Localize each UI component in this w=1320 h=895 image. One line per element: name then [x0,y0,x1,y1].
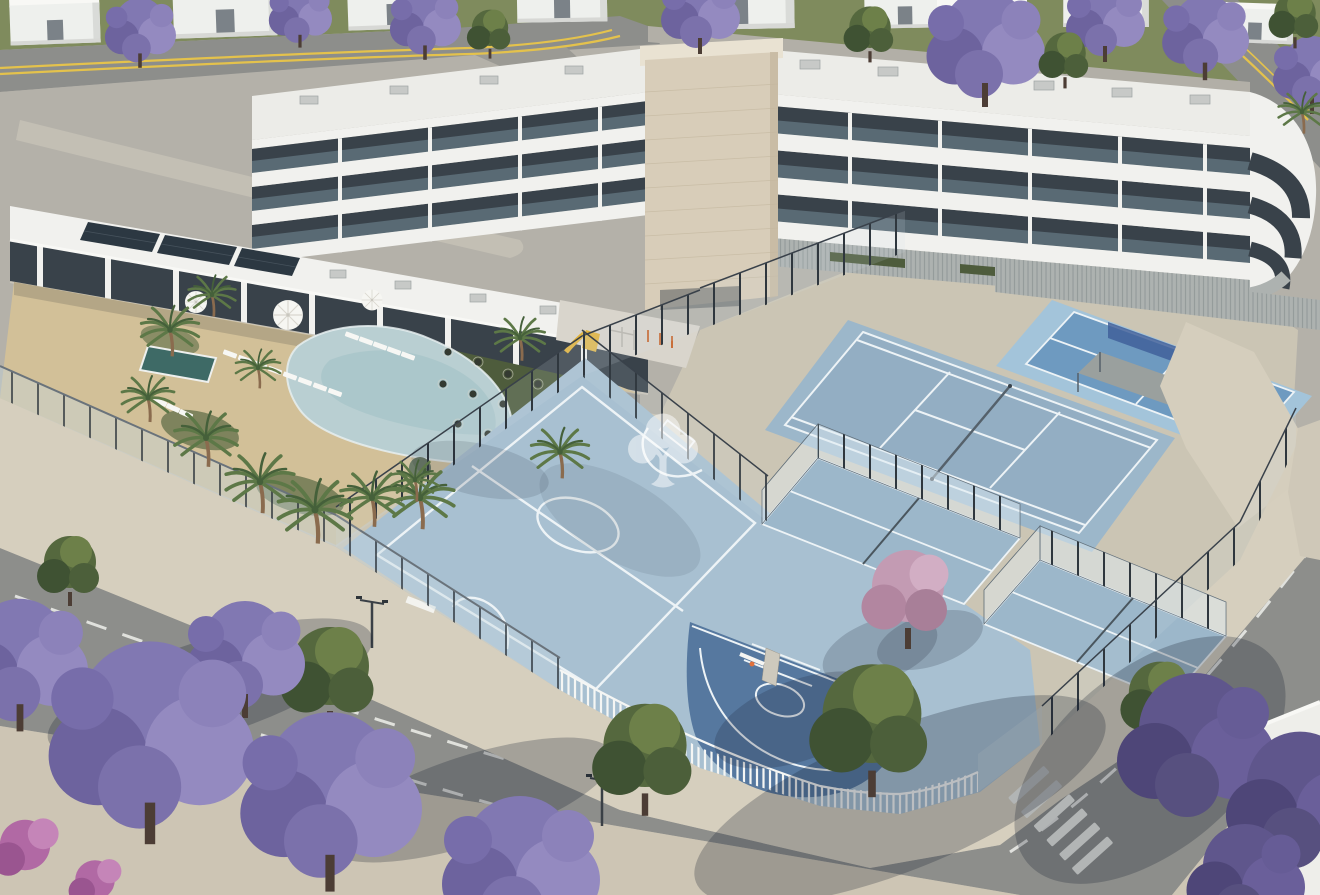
render-canvas [0,0,1320,895]
aerial-render [0,0,1320,895]
pool-umbrella [273,300,303,330]
basketball-rim [750,662,755,667]
pool-umbrella [362,290,383,311]
